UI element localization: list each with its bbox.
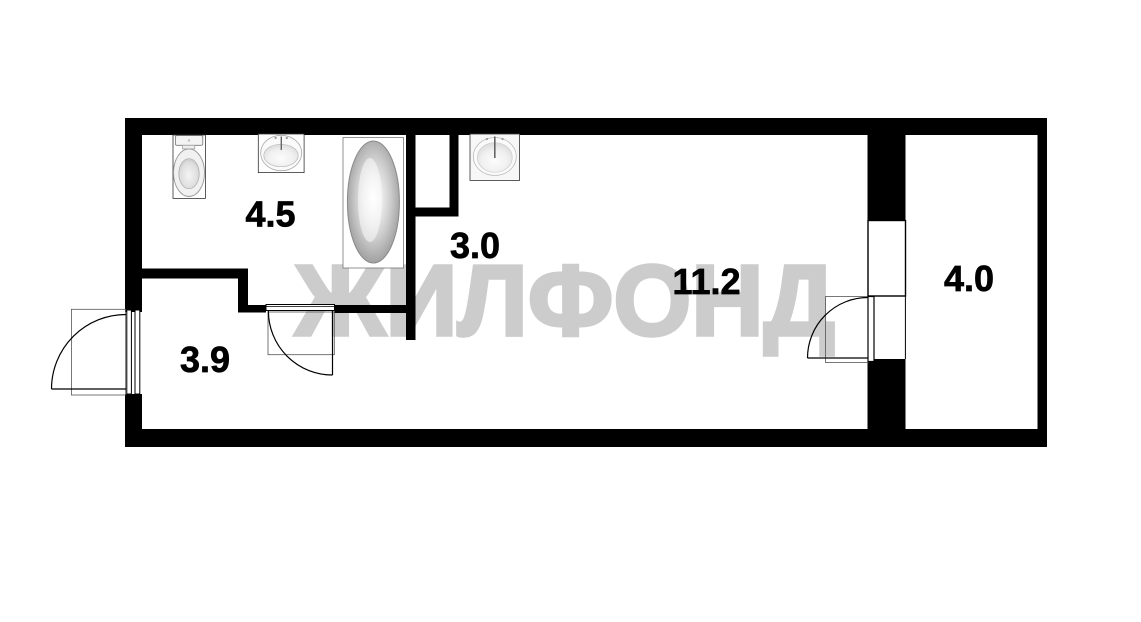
svg-text:4.5: 4.5 xyxy=(245,194,295,235)
svg-text:11.2: 11.2 xyxy=(672,261,740,302)
svg-text:3.0: 3.0 xyxy=(450,225,500,266)
svg-text:4.0: 4.0 xyxy=(944,258,994,299)
svg-text:3.9: 3.9 xyxy=(180,339,230,380)
